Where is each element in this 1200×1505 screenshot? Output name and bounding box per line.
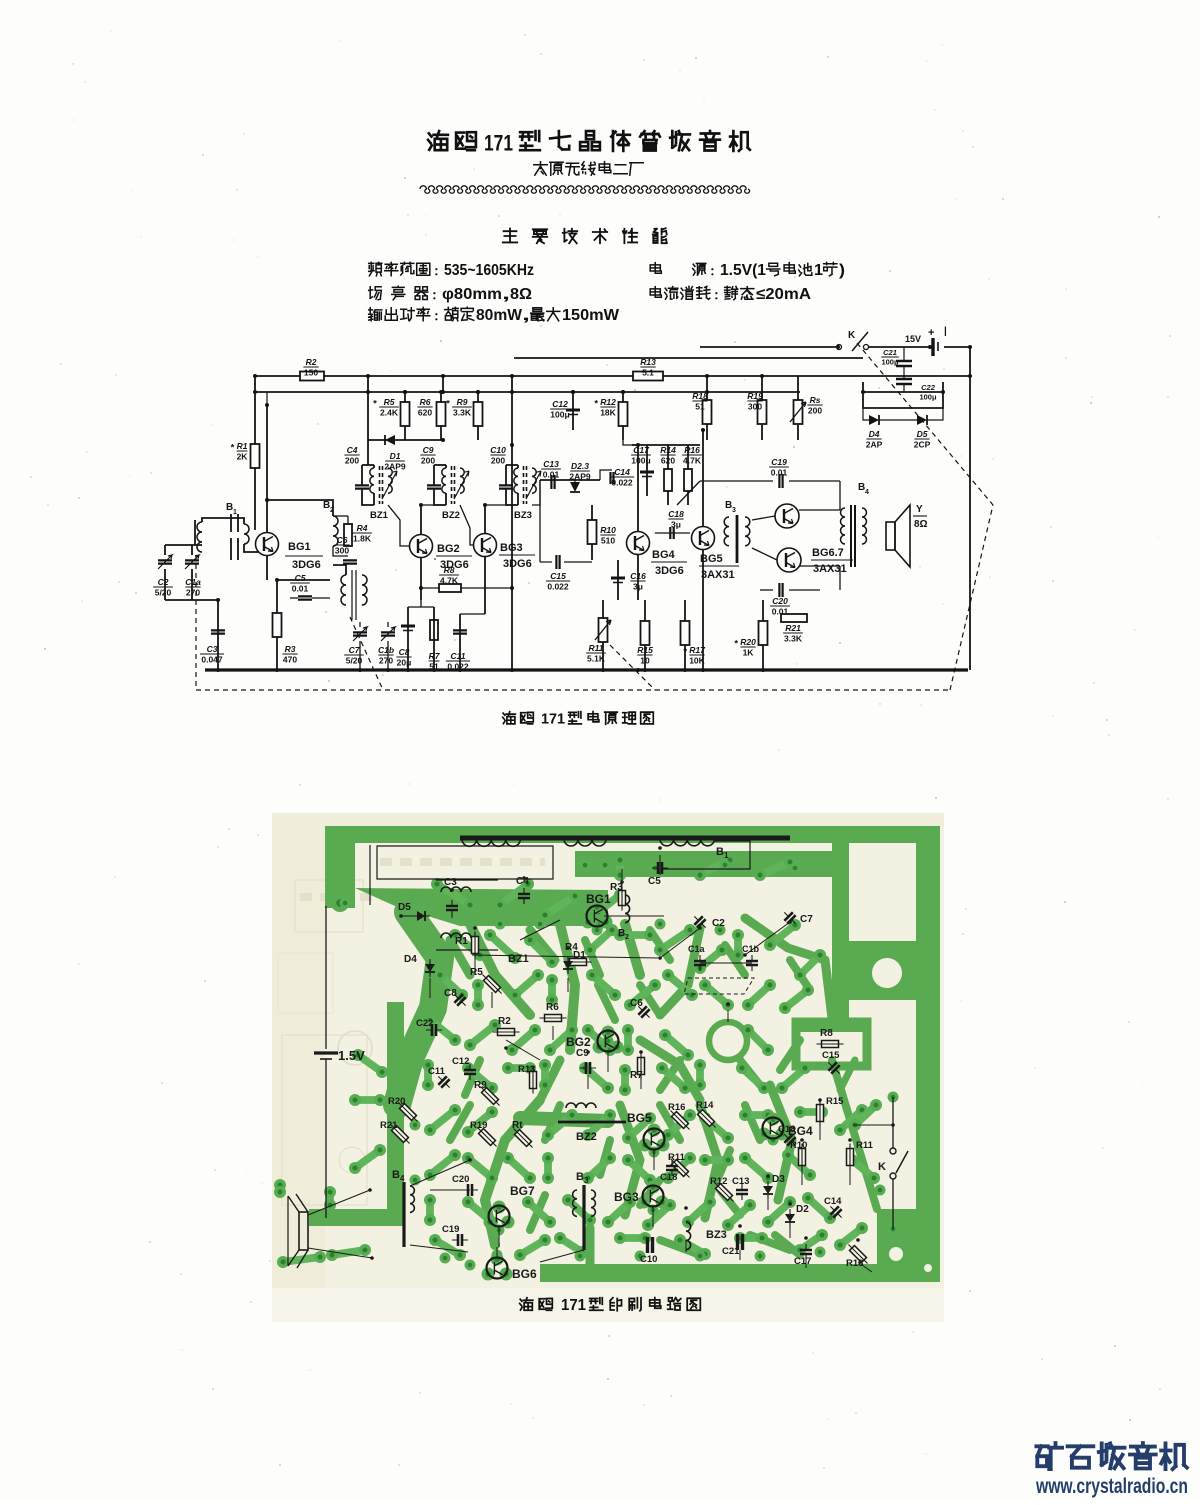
svg-text:D2.3: D2.3 — [571, 461, 589, 471]
svg-text:510: 510 — [601, 536, 615, 546]
svg-text:15V: 15V — [905, 334, 921, 344]
svg-text:*: * — [231, 443, 235, 454]
svg-text:1.5V: 1.5V — [338, 1048, 365, 1063]
svg-text:1: 1 — [814, 262, 823, 279]
svg-text:3: 3 — [732, 507, 736, 514]
svg-text:270: 270 — [379, 656, 393, 666]
svg-text:C22: C22 — [416, 1018, 433, 1029]
svg-text:C15: C15 — [550, 571, 566, 581]
svg-text:C2: C2 — [712, 918, 725, 929]
svg-text:BZ1: BZ1 — [508, 953, 529, 965]
svg-text:*: * — [373, 399, 377, 410]
svg-text:171: 171 — [541, 711, 565, 728]
svg-text:4: 4 — [400, 1174, 405, 1183]
svg-text:*: * — [594, 399, 598, 410]
svg-text:BG5: BG5 — [627, 1111, 652, 1125]
svg-text:C20: C20 — [772, 596, 788, 606]
svg-text:C1b: C1b — [378, 645, 394, 655]
svg-text:0.01: 0.01 — [771, 468, 788, 478]
svg-text:K: K — [878, 1161, 886, 1173]
svg-text:10K: 10K — [689, 656, 705, 666]
svg-text:5.1: 5.1 — [642, 368, 654, 378]
svg-text:R1: R1 — [237, 441, 248, 451]
svg-text:C2: C2 — [158, 577, 169, 587]
svg-text:R6: R6 — [420, 397, 431, 407]
svg-text:270: 270 — [186, 588, 200, 598]
svg-text:3DG6: 3DG6 — [655, 565, 684, 577]
svg-text:470: 470 — [283, 655, 297, 665]
svg-text:R15: R15 — [826, 1096, 844, 1107]
svg-text:D1: D1 — [390, 451, 401, 461]
svg-text:C14: C14 — [824, 1196, 842, 1207]
svg-text:5/20: 5/20 — [346, 656, 363, 666]
svg-text:20μ: 20μ — [397, 658, 412, 668]
svg-text:D2: D2 — [796, 1204, 809, 1215]
svg-text:C12: C12 — [452, 1056, 469, 1067]
svg-text:1: 1 — [724, 851, 729, 860]
svg-text:Y: Y — [916, 504, 923, 515]
svg-text:3μ: 3μ — [671, 520, 681, 530]
svg-text:C9: C9 — [423, 445, 434, 455]
svg-text:R5: R5 — [384, 397, 395, 407]
svg-text:R9: R9 — [457, 397, 468, 407]
svg-text:2K: 2K — [237, 452, 249, 462]
svg-text:80mW: 80mW — [476, 307, 522, 324]
svg-text:D3: D3 — [772, 1174, 785, 1185]
svg-text:R3: R3 — [285, 644, 296, 654]
svg-text:1.8K: 1.8K — [353, 534, 372, 544]
svg-text:4.7K: 4.7K — [440, 576, 459, 586]
svg-text:51: 51 — [695, 402, 705, 412]
svg-text:R21: R21 — [785, 623, 801, 633]
svg-text:C19: C19 — [442, 1224, 459, 1235]
svg-text:C1b: C1b — [742, 944, 760, 954]
svg-text:0.022: 0.022 — [547, 582, 569, 592]
svg-text:*: * — [446, 399, 450, 410]
svg-text:Rt: Rt — [512, 1120, 523, 1131]
svg-text:C7: C7 — [800, 914, 813, 925]
svg-text:8Ω: 8Ω — [914, 519, 928, 530]
svg-text:R8: R8 — [820, 1028, 833, 1039]
svg-text:BG2: BG2 — [437, 543, 460, 555]
svg-text:200: 200 — [808, 406, 822, 416]
svg-text:*: * — [683, 647, 687, 658]
svg-text:1: 1 — [233, 509, 237, 516]
svg-text:*: * — [734, 639, 738, 650]
svg-text:D5: D5 — [398, 902, 411, 913]
svg-text:R20: R20 — [388, 1096, 405, 1107]
svg-text:R5: R5 — [470, 967, 483, 978]
svg-text:K: K — [848, 330, 856, 341]
svg-text:300: 300 — [335, 546, 349, 556]
svg-text:3.3K: 3.3K — [784, 634, 803, 644]
svg-text:BZ1: BZ1 — [370, 510, 389, 521]
svg-text:R11: R11 — [668, 1152, 686, 1163]
svg-text:R19: R19 — [470, 1120, 487, 1131]
svg-text:0.01: 0.01 — [543, 470, 560, 480]
svg-text:100μ: 100μ — [919, 393, 937, 402]
svg-text:,: , — [502, 286, 510, 303]
svg-text:R4: R4 — [357, 523, 368, 533]
svg-text:B: B — [576, 1171, 584, 1183]
svg-text:φ80mm: φ80mm — [442, 286, 502, 303]
svg-text:C18: C18 — [668, 509, 684, 519]
svg-text:C15: C15 — [822, 1050, 840, 1061]
svg-text:R12: R12 — [600, 397, 616, 407]
svg-text:C19: C19 — [771, 457, 787, 467]
svg-text:3AX31: 3AX31 — [701, 569, 735, 581]
svg-text:1.5V(1: 1.5V(1 — [720, 262, 766, 279]
svg-text:C13: C13 — [543, 459, 559, 469]
svg-text:C20: C20 — [452, 1174, 469, 1185]
svg-text:3.3K: 3.3K — [453, 408, 472, 418]
svg-text:2: 2 — [625, 934, 629, 941]
svg-text:2AP9: 2AP9 — [569, 472, 591, 482]
svg-text:|: | — [944, 326, 947, 337]
svg-text:2AP9: 2AP9 — [384, 462, 406, 472]
svg-text:4: 4 — [865, 489, 869, 496]
svg-text:C10: C10 — [640, 1254, 657, 1265]
svg-text:C6: C6 — [630, 998, 643, 1009]
svg-text:2AP: 2AP — [866, 440, 883, 450]
svg-text:200: 200 — [491, 456, 505, 466]
svg-text:5.1K: 5.1K — [587, 654, 606, 664]
svg-text:BZ2: BZ2 — [576, 1131, 597, 1143]
svg-text:B: B — [716, 846, 724, 858]
svg-text:4.7K: 4.7K — [683, 456, 702, 466]
svg-text:C1a: C1a — [688, 944, 706, 954]
svg-text:R13: R13 — [518, 1064, 535, 1075]
svg-text:BG3: BG3 — [614, 1190, 639, 1204]
svg-text:100μ: 100μ — [631, 456, 650, 466]
svg-text:2CP: 2CP — [914, 440, 931, 450]
svg-text:BZ2: BZ2 — [442, 510, 460, 521]
svg-text:C12: C12 — [552, 399, 568, 409]
svg-text:D5: D5 — [917, 429, 928, 439]
svg-text:R17: R17 — [689, 645, 706, 655]
svg-text:3: 3 — [584, 1176, 589, 1185]
svg-text:C3: C3 — [444, 877, 457, 888]
svg-text:0.01: 0.01 — [292, 584, 309, 594]
svg-text:10: 10 — [640, 656, 650, 666]
svg-text:C5: C5 — [295, 573, 306, 583]
svg-text:3DG6: 3DG6 — [292, 559, 321, 571]
svg-text:): ) — [839, 262, 845, 279]
svg-text:620: 620 — [418, 408, 432, 418]
svg-text:C7: C7 — [349, 645, 361, 655]
svg-text:BZ3: BZ3 — [706, 1229, 727, 1241]
svg-text:R9: R9 — [474, 1080, 487, 1091]
svg-text:,: , — [522, 307, 530, 324]
svg-text:R16: R16 — [684, 445, 700, 455]
svg-text:535~1605KHz: 535~1605KHz — [444, 262, 534, 279]
svg-text:C21: C21 — [722, 1246, 740, 1257]
svg-text:BZ3: BZ3 — [514, 510, 532, 521]
svg-text:R7: R7 — [429, 651, 441, 661]
svg-text:R19: R19 — [747, 391, 763, 401]
svg-text:300: 300 — [748, 402, 762, 412]
svg-text:C14: C14 — [614, 467, 630, 477]
svg-text:BG7: BG7 — [510, 1184, 535, 1198]
svg-text:8Ω: 8Ω — [510, 286, 532, 303]
svg-text:BG2: BG2 — [566, 1035, 591, 1049]
svg-text:BG1: BG1 — [586, 892, 611, 906]
svg-text:171: 171 — [561, 1297, 586, 1314]
svg-text:R2: R2 — [498, 1016, 511, 1027]
svg-text:3AX31: 3AX31 — [813, 563, 847, 575]
svg-text:150mW: 150mW — [562, 307, 619, 324]
svg-text:≤20mA: ≤20mA — [756, 286, 811, 303]
svg-text:B: B — [392, 1169, 400, 1181]
svg-text:+: + — [928, 327, 934, 339]
svg-text:R14: R14 — [696, 1100, 714, 1111]
svg-text:C4: C4 — [347, 445, 358, 455]
svg-text:171: 171 — [484, 131, 513, 156]
svg-text:R11: R11 — [589, 643, 604, 653]
svg-text:C11: C11 — [428, 1066, 446, 1077]
svg-text:0.022: 0.022 — [611, 478, 633, 488]
svg-text:5/20: 5/20 — [155, 588, 172, 598]
svg-text:www.crystalradio.cn: www.crystalradio.cn — [1035, 1475, 1188, 1498]
svg-text:D4: D4 — [404, 954, 417, 965]
svg-text:R3: R3 — [610, 882, 623, 893]
svg-text:200: 200 — [345, 456, 359, 466]
svg-text:1K: 1K — [743, 648, 755, 658]
svg-text:BG1: BG1 — [288, 541, 311, 553]
svg-text:R16: R16 — [668, 1102, 685, 1113]
svg-text:C11: C11 — [451, 651, 466, 661]
svg-text:R2: R2 — [306, 357, 317, 367]
svg-text:3DG6: 3DG6 — [503, 558, 532, 570]
svg-text:R11: R11 — [856, 1140, 874, 1151]
svg-text:150: 150 — [304, 368, 318, 378]
svg-text:C18: C18 — [778, 1124, 795, 1135]
svg-text:C3: C3 — [207, 644, 218, 654]
svg-text:0.047: 0.047 — [201, 655, 223, 665]
svg-text:200: 200 — [421, 456, 435, 466]
svg-text:18K: 18K — [600, 408, 616, 418]
svg-text:C10: C10 — [490, 445, 506, 455]
svg-text:R13: R13 — [640, 357, 656, 367]
svg-text:R1: R1 — [455, 936, 468, 947]
svg-text:R14: R14 — [660, 445, 676, 455]
svg-text:R10: R10 — [600, 525, 616, 535]
svg-text:C6: C6 — [337, 535, 348, 545]
svg-text:C5: C5 — [648, 876, 661, 887]
svg-text:C18: C18 — [660, 1172, 677, 1183]
svg-text:C17: C17 — [633, 445, 650, 455]
svg-text:BG6.7: BG6.7 — [812, 547, 844, 559]
svg-text:100μ: 100μ — [550, 410, 569, 420]
svg-text:C22: C22 — [921, 383, 936, 392]
svg-text:BG4: BG4 — [652, 549, 676, 561]
svg-text:C1a: C1a — [185, 577, 201, 587]
svg-text:BG6: BG6 — [512, 1267, 537, 1281]
svg-text:Rs: Rs — [810, 395, 821, 405]
svg-text:R12: R12 — [710, 1176, 727, 1187]
svg-text:C8: C8 — [444, 988, 457, 999]
svg-text:C17: C17 — [794, 1256, 811, 1267]
svg-text:C8: C8 — [399, 647, 410, 657]
svg-text:R15: R15 — [637, 645, 653, 655]
svg-text:D1: D1 — [573, 950, 586, 961]
svg-text:R20: R20 — [740, 637, 756, 647]
svg-text:C21: C21 — [883, 348, 897, 357]
svg-text:C13: C13 — [732, 1176, 749, 1187]
svg-text:2.4K: 2.4K — [380, 408, 399, 418]
svg-text:R8: R8 — [444, 565, 455, 575]
svg-text:R21: R21 — [380, 1120, 398, 1131]
svg-text:620: 620 — [661, 456, 675, 466]
svg-text:R6: R6 — [546, 1002, 559, 1013]
svg-text:D4: D4 — [869, 429, 880, 439]
